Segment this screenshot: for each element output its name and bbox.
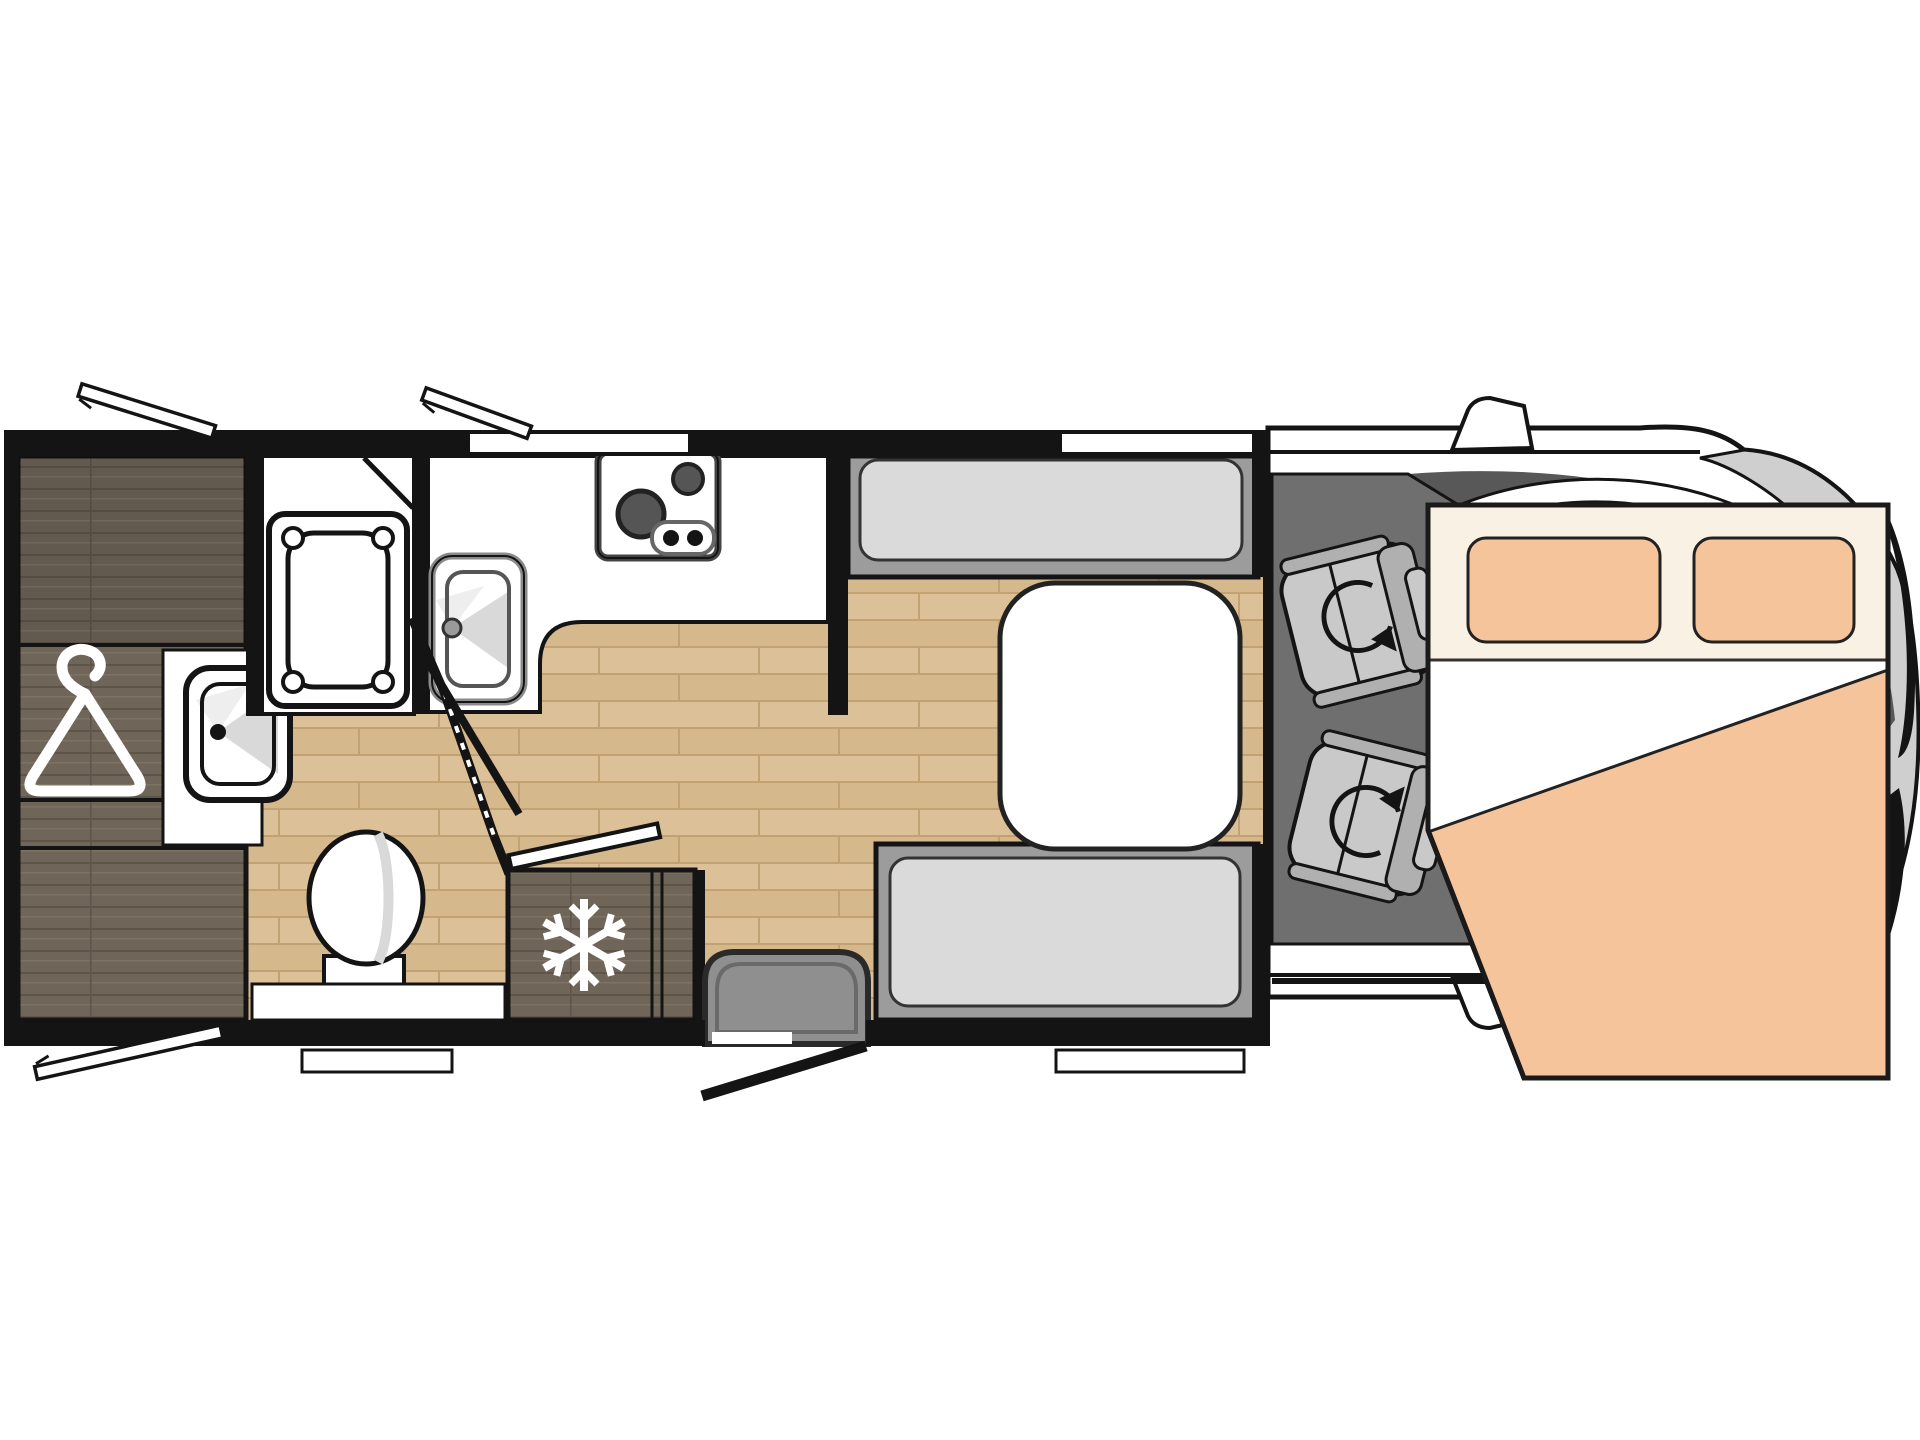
shower-room — [246, 456, 414, 716]
stove-knob — [663, 530, 679, 546]
wall-bottom-left — [4, 1020, 705, 1046]
shower-partition-wall — [246, 456, 262, 716]
floor-plan-page — [0, 0, 1920, 1440]
front-bench-cushion — [860, 460, 1242, 560]
bench-end-panel-bottom — [1252, 844, 1270, 1020]
faucet-icon — [443, 619, 461, 637]
toilet-base-mat — [252, 984, 505, 1020]
counter-end-panel — [828, 456, 848, 715]
service-hatch-left — [302, 1050, 452, 1072]
mirror-top-icon — [1452, 398, 1532, 450]
pillow-right — [1694, 538, 1854, 642]
kitchen-window — [470, 434, 688, 452]
wall-left — [4, 430, 18, 1046]
motorhome-floor-plan — [0, 0, 1920, 1440]
table — [1000, 583, 1240, 849]
stove-knob — [687, 530, 703, 546]
drop-down-bed — [1428, 505, 1888, 1078]
service-hatch-right — [1056, 1050, 1244, 1072]
entry-threshold — [712, 1032, 792, 1044]
wardrobe-top-shade — [18, 456, 246, 645]
shower-tray — [269, 514, 407, 706]
pillow-left — [1468, 538, 1660, 642]
kitchen-partition-wall — [414, 456, 428, 714]
entry — [702, 952, 868, 1096]
entry-door-leaf — [702, 1046, 866, 1096]
kitchen-sink — [432, 556, 524, 702]
dinette-window — [1062, 434, 1252, 452]
wall-bottom-right — [866, 1020, 1270, 1046]
toilet-bowl — [309, 832, 423, 964]
two-burner-stove — [598, 452, 718, 558]
faucet-icon — [210, 724, 226, 740]
burner-small — [673, 464, 703, 494]
rear-bench-cushion — [890, 858, 1240, 1006]
